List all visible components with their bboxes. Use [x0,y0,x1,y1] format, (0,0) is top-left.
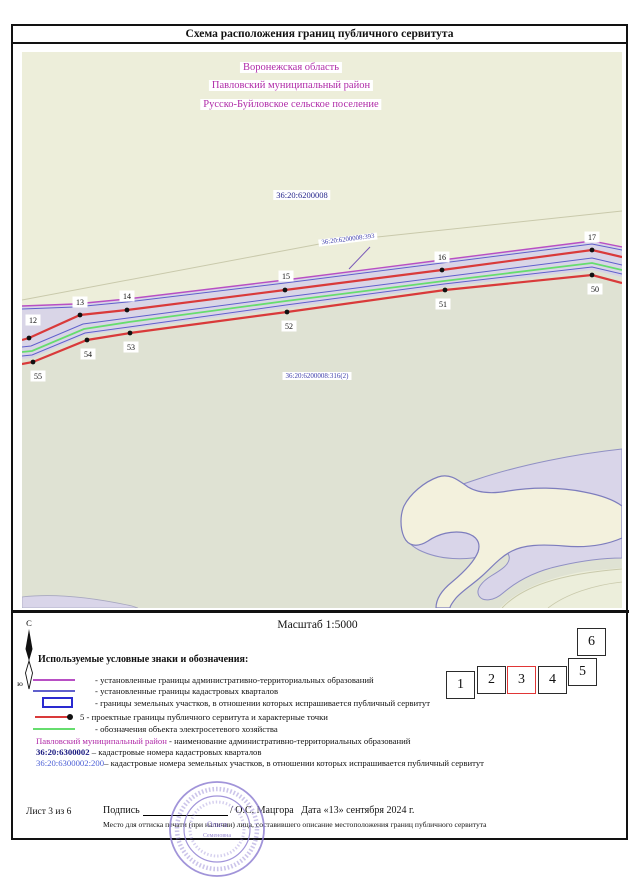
stamp-inner-text [190,802,244,856]
point-marker [85,338,90,343]
point-label: 50 [591,285,599,294]
parcel-boundary-swatch [42,697,73,708]
point-label: 15 [282,272,290,281]
point-label: 54 [84,350,92,359]
point-marker [285,310,290,315]
page-title: Схема расположения границ публичного сер… [11,24,628,44]
admin-name-example: Павловский муниципальный район [36,736,167,746]
legend-text-label: – кадастровые номера земельных участков,… [104,758,484,768]
point-marker [283,288,288,293]
point-marker [31,360,36,365]
region-label-settlement: Русско-Буйловское сельское поселение [200,99,381,110]
sheet-index-square-2: 2 [477,666,506,694]
cadastral-quarter-number: 36:20:6200008 [273,190,330,200]
servitude-line-swatch [35,716,68,718]
point-label: 52 [285,322,293,331]
sheet-index-square-5: 5 [568,658,597,686]
region-label-district: Павловский муниципальный район [209,80,373,91]
legend-item-label: - установленные границы кадастровых квар… [95,686,278,696]
power-line-swatch [33,728,75,730]
sheet-index-square-6: 6 [577,628,606,656]
point-label: 53 [127,343,135,352]
sheet-number: 3 [518,672,525,688]
signature-label: Подпись [103,805,140,816]
point-label: 13 [76,298,84,307]
point-marker [78,313,83,318]
region-label-oblast: Воронежская область [240,62,342,73]
legend-text-quarter-number: 36:20:6300002 – кадастровые номера кадас… [36,747,261,757]
legend-item-label: - установленные границы административно-… [95,675,374,685]
legend-text-label: – кадастровые номера кадастровых квартал… [90,747,262,757]
point-dot-swatch [67,714,73,720]
legend-item-power-line: - обозначения объекта электросетевого хо… [33,724,278,734]
legend-item-quarter-boundaries: - установленные границы кадастровых квар… [33,686,278,696]
parcel-number-316: 36:20:6200008:316(2) [283,372,352,380]
point-label: 17 [588,233,596,242]
sheet-number: 2 [488,672,495,688]
parcel-number-example: 36:20:6300002:200 [36,758,104,768]
point-label: 12 [29,316,37,325]
quarter-number-example: 36:20:6300002 [36,747,90,757]
point-marker [590,248,595,253]
sheet-number: 4 [549,672,556,688]
sheet-number: 1 [457,677,464,693]
legend-text-label: - наименование административно-территори… [167,736,411,746]
legend-item-label: - границы земельных участков, в отношени… [95,698,430,708]
sheet-number: 6 [588,634,595,650]
legend-heading: Используемые условные знаки и обозначени… [38,654,248,665]
point-marker [590,273,595,278]
point-marker [443,288,448,293]
cadastral-map: 121314151617555453525150 [22,52,622,608]
north-label: С [26,618,32,628]
servitude-scheme-page: Схема расположения границ публичного сер… [0,0,641,880]
point-marker [440,268,445,273]
sheet-number: 5 [579,664,586,680]
sheet-index-square-4: 4 [538,666,567,694]
legend-item-admin-boundaries: - установленные границы административно-… [33,675,374,685]
legend-item-parcel-boundaries: - границы земельных участков, в отношени… [33,697,430,708]
point-marker [125,308,130,313]
south-label: ю [17,679,23,688]
point-marker [27,336,32,341]
legend-item-servitude-boundaries: 5 - проектные границы публичного сервиту… [33,712,328,722]
point-label: 16 [438,253,446,262]
sheet-index-square-3: 3 [507,666,536,694]
point-label: 14 [123,292,131,301]
admin-boundary-swatch [33,679,75,681]
stamp-inner-ring [184,796,250,862]
needle-north-half [26,629,33,661]
map-scale: Масштаб 1:5000 [11,619,624,631]
point-marker [128,331,133,336]
legend-text-admin-name: Павловский муниципальный район - наимено… [36,736,410,746]
quarter-boundary-swatch [33,690,75,692]
stamp-seal: Ольга Семеновна [167,779,267,879]
legend-item-label: - обозначения объекта электросетевого хо… [95,724,278,734]
stamp-name-line2: Семеновна [203,833,231,839]
point-label: 55 [34,372,42,381]
point-label: 51 [439,300,447,309]
needle-south-half [26,661,33,689]
legend-text-parcel-number: 36:20:6300002:200– кадастровые номера зе… [36,758,484,768]
sheet-counter: Лист 3 из 6 [26,807,71,817]
stamp-name-line1: Ольга [207,820,228,829]
map-legend-divider [11,610,629,613]
legend-item-label: 5 - проектные границы публичного сервиту… [80,712,328,722]
sheet-index-square-1: 1 [446,671,475,699]
